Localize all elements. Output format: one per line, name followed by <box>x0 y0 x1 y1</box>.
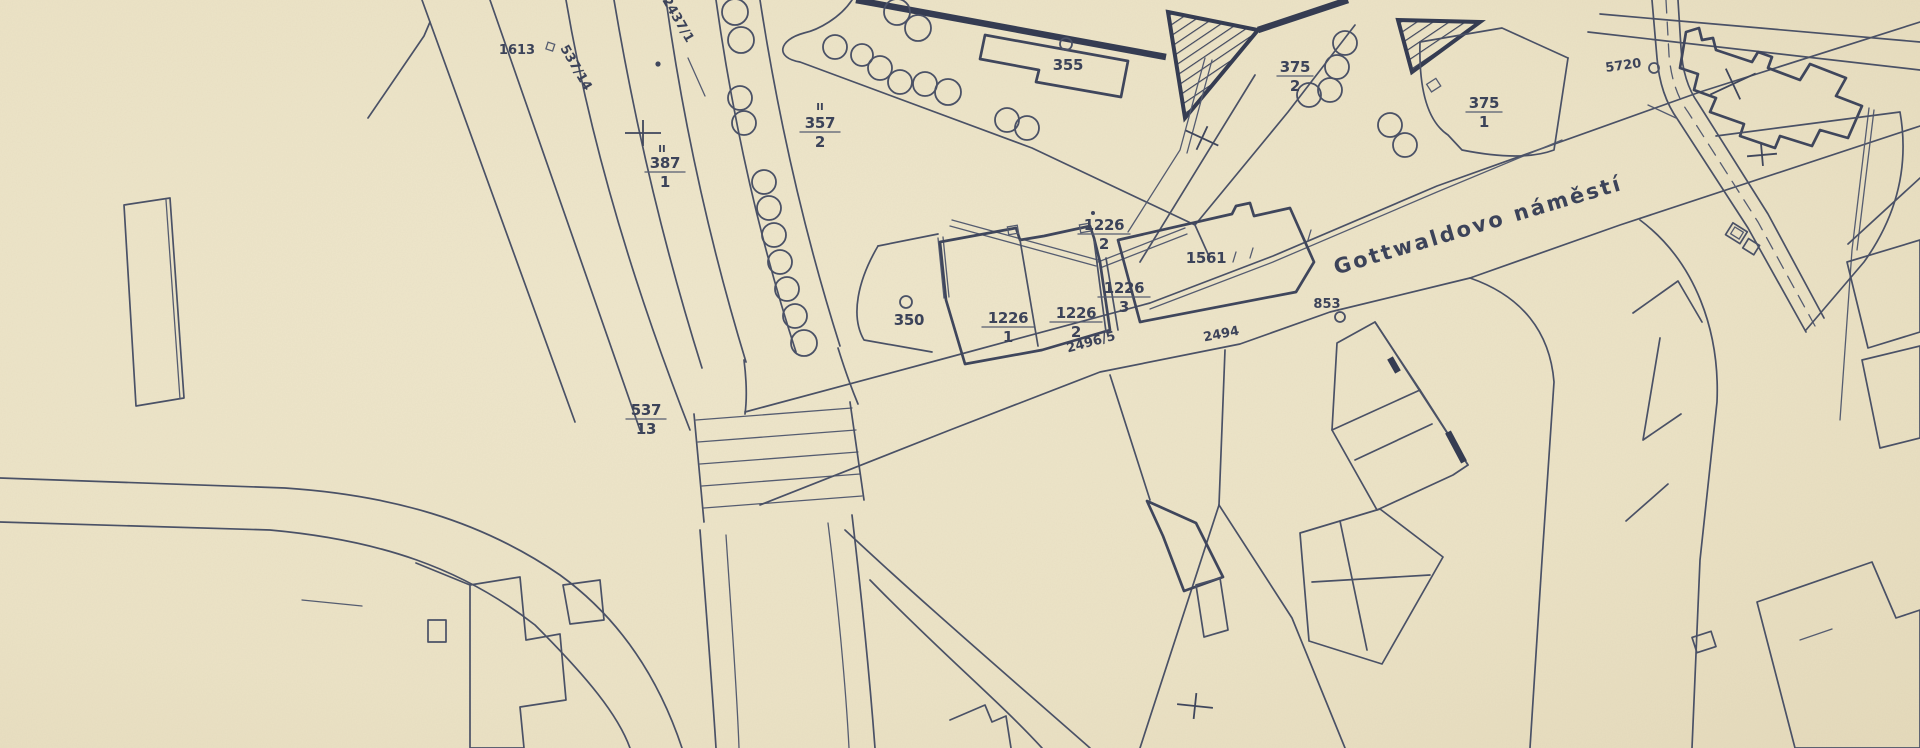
class-marker-II: II <box>816 102 823 113</box>
svg-text:387: 387 <box>650 154 680 172</box>
svg-text:1: 1 <box>660 173 670 191</box>
cadastral-map-scan: 1613 537/14 2437/1 355 1561 350 853 5720… <box>0 0 1920 748</box>
svg-text:3: 3 <box>1119 298 1129 316</box>
map-canvas: 1613 537/14 2437/1 355 1561 350 853 5720… <box>0 0 1920 748</box>
parcel-label-350: 350 <box>894 311 924 329</box>
parcel-label-355: 355 <box>1053 56 1083 74</box>
svg-text:13: 13 <box>636 420 656 438</box>
svg-text:2: 2 <box>815 133 825 151</box>
parcel-label-853: 853 <box>1313 297 1340 312</box>
svg-text:357: 357 <box>805 114 835 132</box>
svg-text:2: 2 <box>1290 77 1300 95</box>
paper-grain-texture <box>0 0 1920 748</box>
svg-text:2: 2 <box>1099 235 1109 253</box>
svg-text:1226: 1226 <box>988 309 1029 327</box>
parcel-label-1561: 1561 <box>1186 249 1227 267</box>
svg-text:1226: 1226 <box>1084 216 1125 234</box>
svg-text:375: 375 <box>1280 58 1310 76</box>
parcel-label-1613: 1613 <box>499 43 535 58</box>
boundary-point-icon <box>1091 211 1095 215</box>
svg-text:537: 537 <box>631 401 661 419</box>
svg-text:2: 2 <box>1071 323 1081 341</box>
svg-text:1: 1 <box>1003 328 1013 346</box>
svg-text:1: 1 <box>1479 113 1489 131</box>
boundary-point-icon <box>655 61 660 66</box>
svg-text:375: 375 <box>1469 94 1499 112</box>
svg-text:1226: 1226 <box>1104 279 1145 297</box>
svg-text:1226: 1226 <box>1056 304 1097 322</box>
